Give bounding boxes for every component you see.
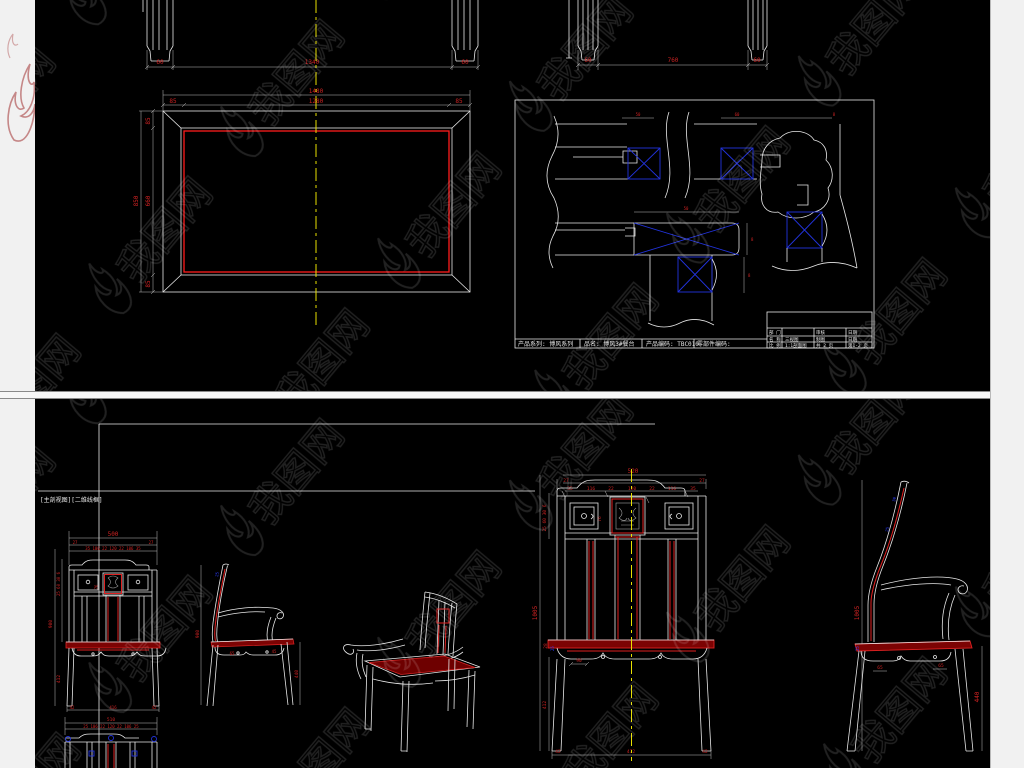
watermark-overlay bbox=[35, 399, 990, 768]
page-margin-right bbox=[990, 0, 1024, 768]
cad-preview-page: 我图网 60 1340 60 bbox=[0, 0, 1024, 768]
table-drawing-svg: 我图网 60 1340 60 bbox=[35, 0, 990, 391]
cad-sheet-table: 我图网 60 1340 60 bbox=[35, 0, 990, 391]
margin-watermark bbox=[0, 0, 35, 768]
watermark-overlay bbox=[35, 0, 990, 391]
cad-sheet-chairs: 我图网 [主剖视图][二维线框] 500 27 27 35 106 22 120… bbox=[35, 399, 990, 768]
page-gap bbox=[0, 391, 1024, 399]
flame-watermark-wisp bbox=[8, 34, 18, 58]
chair-drawing-svg: 我图网 [主剖视图][二维线框] 500 27 27 35 106 22 120… bbox=[35, 399, 990, 768]
page-margin-left bbox=[0, 0, 36, 768]
flame-watermark-icon bbox=[8, 64, 35, 141]
